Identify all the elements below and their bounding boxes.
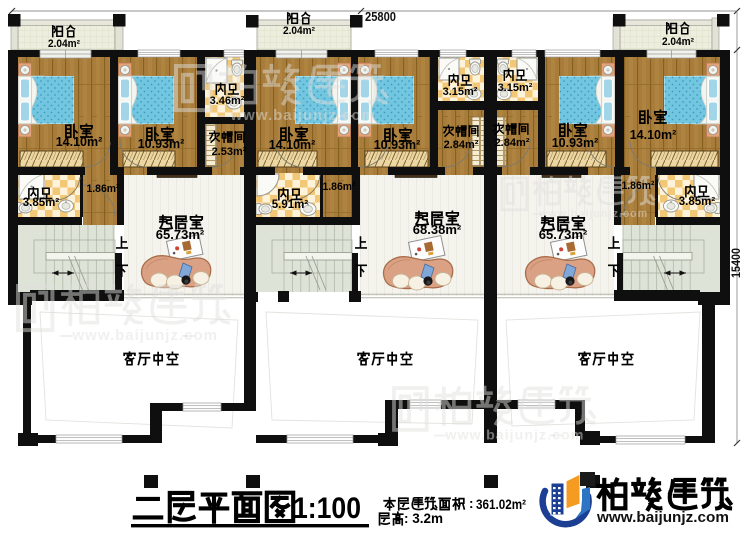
svg-text:14.10m²: 14.10m² xyxy=(56,135,103,149)
svg-text:68.38m²: 68.38m² xyxy=(413,222,462,237)
svg-text:www.baijunjz.com: www.baijunjz.com xyxy=(72,327,218,344)
svg-text:2.53m²: 2.53m² xyxy=(212,146,247,158)
svg-text:1.86m²: 1.86m² xyxy=(323,181,356,193)
svg-text:www.baijunjz.com: www.baijunjz.com xyxy=(230,107,376,124)
svg-text:3.85m²: 3.85m² xyxy=(23,197,60,209)
svg-text:www.baijunjz.com: www.baijunjz.com xyxy=(444,427,584,443)
svg-text:www.baijunjz.com: www.baijunjz.com xyxy=(596,509,729,526)
svg-text::: : xyxy=(469,496,474,511)
svg-text:2.04m²: 2.04m² xyxy=(283,25,315,37)
svg-text:3.85m²: 3.85m² xyxy=(679,196,716,208)
svg-text:www.baijunjz.com: www.baijunjz.com xyxy=(538,208,648,220)
svg-text:1.86m²: 1.86m² xyxy=(87,183,120,195)
svg-text:5.91m²: 5.91m² xyxy=(272,199,309,211)
svg-text:2.04m²: 2.04m² xyxy=(48,38,80,50)
svg-text:: 3.2m: : 3.2m xyxy=(404,511,443,526)
svg-text:10.93m²: 10.93m² xyxy=(552,136,599,150)
svg-text:3.46m²: 3.46m² xyxy=(210,95,245,107)
svg-text:14.10m²: 14.10m² xyxy=(630,128,677,142)
svg-text:1.86m²: 1.86m² xyxy=(622,180,655,192)
svg-text:25800: 25800 xyxy=(365,9,396,24)
svg-text:361.02m²: 361.02m² xyxy=(476,497,526,512)
svg-text:10.93m²: 10.93m² xyxy=(374,138,421,152)
svg-text:65.73m²: 65.73m² xyxy=(539,227,588,242)
svg-text:2.84m²: 2.84m² xyxy=(444,139,479,151)
svg-text:1:100: 1:100 xyxy=(293,492,361,525)
svg-text:65.73m²: 65.73m² xyxy=(156,227,205,242)
svg-text:3.15m²: 3.15m² xyxy=(443,86,478,98)
svg-text:2.04m²: 2.04m² xyxy=(662,36,694,48)
svg-text:3.15m²: 3.15m² xyxy=(498,82,533,94)
svg-text:15400: 15400 xyxy=(729,248,743,278)
svg-text:10.93m²: 10.93m² xyxy=(138,137,185,151)
svg-text:14.10m²: 14.10m² xyxy=(269,138,316,152)
svg-text:2.84m²: 2.84m² xyxy=(495,137,530,149)
